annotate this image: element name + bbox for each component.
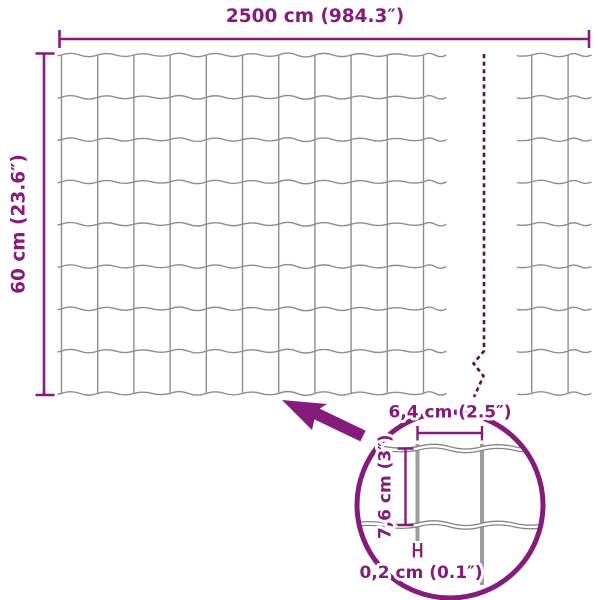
mesh-horizontal-wire <box>25 222 446 226</box>
mesh-horizontal-wire <box>496 222 592 225</box>
cell-width-label: 6,4 cm (2.5″) <box>389 403 512 423</box>
fence-diagram-canvas: 2500 cm (984.3″) 60 cm (23.6″) 6,4 cm (2… <box>0 0 600 600</box>
height-dimension-label: 60 cm (23.6″) <box>9 154 30 294</box>
mesh-horizontal-wire <box>496 180 592 183</box>
mesh-horizontal-wire <box>25 349 446 353</box>
cell-height-label: 7,6 cm (3″) <box>376 434 396 539</box>
mesh-horizontal-wire <box>25 180 446 184</box>
mesh-horizontal-wire <box>25 307 446 311</box>
mesh-horizontal-wire <box>496 307 592 310</box>
mesh-horizontal-wire <box>496 138 592 141</box>
mesh-horizontal-wire <box>25 95 446 99</box>
wire-mesh-main-panel <box>25 53 446 395</box>
mesh-horizontal-wire <box>496 96 592 99</box>
break-line <box>474 54 485 397</box>
width-dimension: 2500 cm (984.3″) <box>60 6 590 48</box>
mesh-horizontal-wire <box>496 392 592 395</box>
mesh-horizontal-wire <box>25 392 446 396</box>
magnifier-detail: 6,4 cm (2.5″) 7,6 cm (3″) 0,2 cm (0.1″) <box>353 403 547 599</box>
magnifier-arrow-icon <box>282 400 366 441</box>
product-dimension-diagram: 2500 cm (984.3″) 60 cm (23.6″) 6,4 cm (2… <box>0 0 600 600</box>
mesh-horizontal-wire <box>25 265 446 269</box>
mesh-horizontal-wire <box>25 138 446 142</box>
wire-thickness-label: 0,2 cm (0.1″) <box>360 563 483 583</box>
mesh-horizontal-wire <box>496 53 592 56</box>
wire-mesh-right-panel <box>496 53 592 395</box>
height-dimension: 60 cm (23.6″) <box>9 54 55 396</box>
mesh-horizontal-wire <box>496 349 592 352</box>
mesh-horizontal-wire <box>496 265 592 268</box>
width-dimension-label: 2500 cm (984.3″) <box>226 6 404 27</box>
mesh-horizontal-wire <box>25 53 446 57</box>
